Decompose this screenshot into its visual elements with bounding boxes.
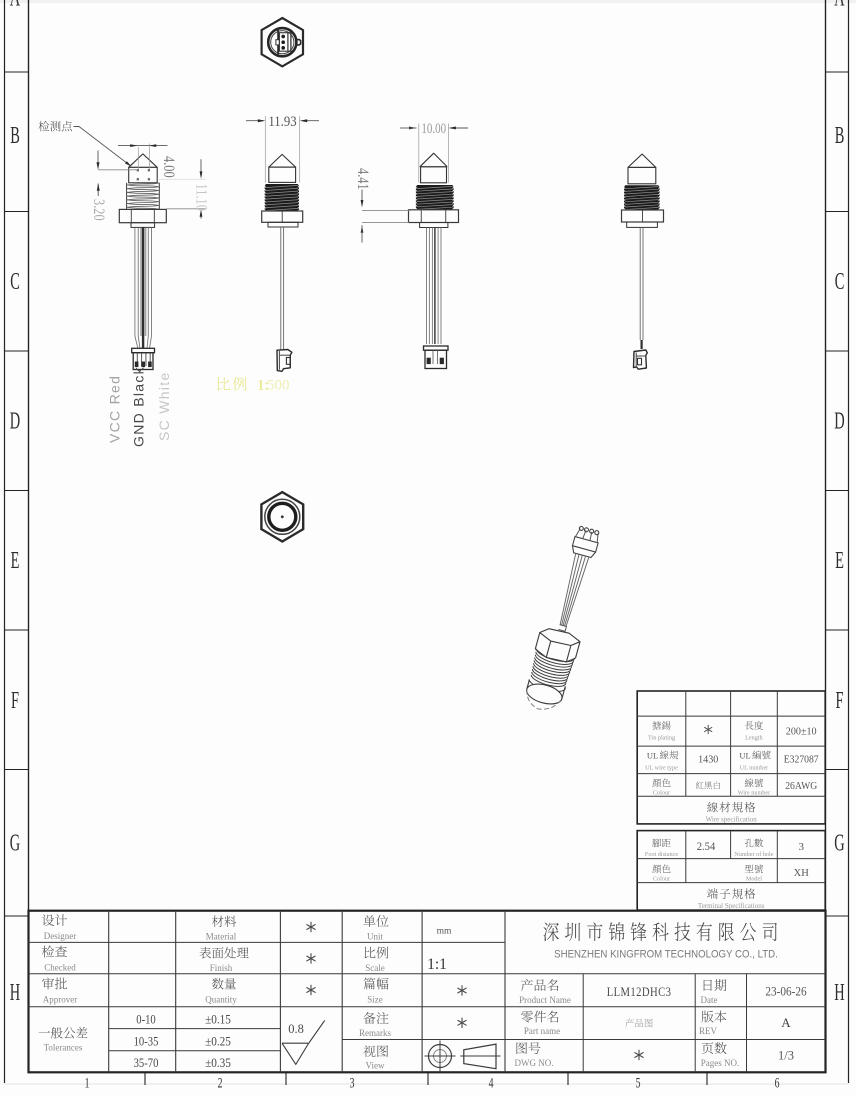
svg-text:C: C — [835, 268, 845, 295]
svg-text:Product Name: Product Name — [519, 995, 571, 1005]
svg-text:Pages NO.: Pages NO. — [701, 1058, 740, 1068]
svg-text:A: A — [10, 0, 21, 12]
svg-text:DWG NO.: DWG NO. — [515, 1058, 554, 1068]
svg-text:Quantity: Quantity — [205, 995, 237, 1005]
svg-text:E: E — [11, 548, 20, 575]
svg-text:H: H — [10, 979, 20, 1006]
svg-text:mm: mm — [437, 927, 452, 937]
svg-text:Colour: Colour — [653, 790, 670, 797]
svg-text:200±10: 200±10 — [786, 726, 817, 737]
svg-text:4: 4 — [489, 1074, 494, 1091]
svg-text:E: E — [835, 548, 844, 575]
svg-text:2.54: 2.54 — [697, 841, 716, 853]
svg-text:View: View — [366, 1061, 385, 1071]
svg-text:1: 1 — [85, 1074, 90, 1091]
svg-text:10.00: 10.00 — [421, 121, 446, 137]
svg-text:Length: Length — [745, 735, 763, 742]
svg-text:LLM12DHC3: LLM12DHC3 — [607, 984, 672, 999]
svg-text:G: G — [10, 830, 20, 857]
svg-text:±0.35: ±0.35 — [205, 1055, 231, 1070]
svg-text:1430: 1430 — [698, 754, 718, 765]
svg-text:3.20: 3.20 — [90, 199, 108, 221]
svg-text:Designer: Designer — [44, 931, 77, 941]
svg-text:Date: Date — [701, 995, 718, 1005]
svg-text:Tolerances: Tolerances — [44, 1043, 83, 1053]
svg-text:Terminal Specifications: Terminal Specifications — [698, 902, 765, 910]
svg-text:D: D — [834, 408, 844, 435]
svg-text:Model: Model — [746, 876, 762, 883]
svg-text:D: D — [10, 408, 20, 435]
svg-text:2: 2 — [218, 1074, 223, 1091]
svg-text:Scale: Scale — [365, 963, 385, 973]
svg-text:±0.25: ±0.25 — [205, 1034, 231, 1049]
svg-text:23-06-26: 23-06-26 — [765, 984, 806, 999]
svg-text:0-10: 0-10 — [136, 1013, 156, 1027]
svg-text:35-70: 35-70 — [134, 1056, 159, 1070]
svg-text:Tin plating: Tin plating — [648, 735, 675, 742]
svg-text:4.00: 4.00 — [160, 156, 178, 178]
svg-text:Size: Size — [367, 995, 383, 1005]
svg-text:SHENZHEN KINGFROM TECHNOLOGY C: SHENZHEN KINGFROM TECHNOLOGY CO., LTD. — [554, 949, 778, 961]
svg-text:Unit: Unit — [367, 932, 384, 942]
svg-text:26AWG: 26AWG — [785, 781, 817, 792]
svg-text:Material: Material — [206, 932, 237, 942]
svg-text:XH: XH — [794, 868, 810, 879]
svg-text:VCC Red: VCC Red — [107, 375, 123, 443]
svg-text:E327087: E327087 — [784, 754, 819, 765]
svg-text:F: F — [11, 687, 19, 714]
svg-text:5: 5 — [636, 1074, 641, 1091]
svg-text:H: H — [834, 979, 844, 1006]
svg-text:1:1: 1:1 — [427, 956, 447, 973]
svg-text:G: G — [834, 830, 844, 857]
svg-text:A: A — [834, 0, 845, 12]
svg-text:10-35: 10-35 — [134, 1035, 159, 1049]
svg-text:Wire number: Wire number — [738, 790, 771, 797]
svg-text:Colour: Colour — [653, 876, 670, 883]
svg-text:F: F — [835, 687, 843, 714]
svg-text:Number of hole: Number of hole — [734, 851, 773, 858]
svg-text:3: 3 — [798, 841, 804, 853]
svg-text:UL number: UL number — [740, 765, 768, 772]
svg-text:0.8: 0.8 — [288, 1022, 304, 1036]
svg-text:500: 500 — [267, 378, 290, 394]
svg-text:UL: UL — [739, 751, 750, 761]
svg-text:Checked: Checked — [44, 963, 76, 973]
svg-text:Finish: Finish — [210, 963, 233, 973]
svg-text:B: B — [10, 122, 20, 149]
svg-text:11.93: 11.93 — [268, 114, 296, 130]
svg-text:C: C — [10, 268, 20, 295]
svg-text:4.41: 4.41 — [354, 168, 372, 190]
svg-text:Approver: Approver — [43, 995, 78, 1005]
svg-text:±0.15: ±0.15 — [205, 1012, 231, 1027]
svg-text:B: B — [835, 122, 845, 149]
svg-text:Foot distance: Foot distance — [645, 851, 678, 858]
svg-text:3: 3 — [350, 1074, 355, 1091]
svg-text:UL: UL — [647, 751, 658, 761]
svg-text:11.10: 11.10 — [192, 184, 210, 211]
svg-text:SC White: SC White — [156, 371, 172, 441]
svg-text:Part name: Part name — [524, 1026, 560, 1036]
svg-text:REV: REV — [699, 1026, 718, 1036]
svg-text:1/3: 1/3 — [778, 1049, 794, 1063]
svg-text:6: 6 — [775, 1074, 780, 1091]
svg-text:Wire specification: Wire specification — [706, 816, 758, 824]
svg-text:UL wire type: UL wire type — [645, 765, 678, 772]
svg-text:A: A — [781, 1015, 791, 1030]
svg-text:Remarks: Remarks — [359, 1028, 391, 1038]
svg-text:GND Black: GND Black — [131, 366, 147, 447]
